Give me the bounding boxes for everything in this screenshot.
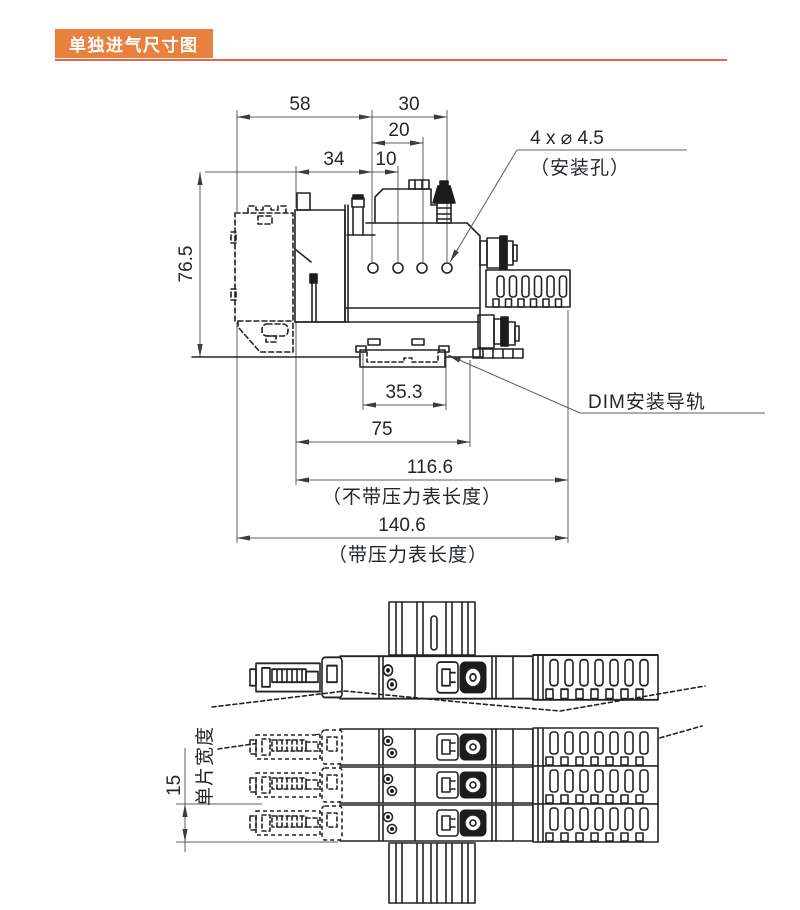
- dim-20: 20: [388, 120, 409, 141]
- dim-75: 75: [371, 419, 392, 440]
- top-view-drawing: 15 单片宽度: [164, 602, 705, 903]
- valve-plug-2: [250, 730, 342, 764]
- valve-plug-4: [250, 806, 342, 840]
- valve-plug-1: [250, 657, 342, 697]
- dim-34: 34: [323, 149, 345, 170]
- valve-slice-3: [340, 766, 658, 804]
- pilot-valve-body: [295, 193, 375, 322]
- side-view-drawing: 58 30 20 34 10 76.5 35.3 75 116.6 140.6 …: [176, 94, 765, 566]
- dim-116-6: 116.6: [407, 457, 453, 478]
- dim-140-6: 140.6: [378, 515, 426, 536]
- valve-plug-3: [250, 768, 342, 802]
- len-with-gauge-label: （带压力表长度）: [328, 544, 488, 566]
- fittings-silencer: [473, 236, 570, 358]
- len-without-gauge-label: （不带压力表长度）: [322, 486, 502, 508]
- pressure-gauge-phantom: [231, 206, 293, 352]
- din-rail-clip: [356, 339, 449, 367]
- mounting-hole-note: （安装孔）: [530, 157, 630, 179]
- dim-35-3: 35.3: [386, 382, 423, 403]
- section-title: 单独进气尺寸图: [69, 31, 199, 56]
- bottom-supply-block: [389, 843, 475, 903]
- section-header-rule: [55, 59, 727, 61]
- mounting-hole-callout: 4 x ⌀ 4.5: [530, 128, 604, 149]
- dim-76-5: 76.5: [176, 246, 197, 283]
- dim-30: 30: [398, 94, 419, 115]
- dim-15: 15: [164, 775, 185, 796]
- slice-width-label: 单片宽度: [194, 726, 216, 806]
- dim-10: 10: [375, 149, 396, 170]
- valve-slice-4: [340, 804, 658, 842]
- datasheet-page: 单独进气尺寸图: [0, 0, 800, 910]
- valve-slice-1: [340, 655, 658, 700]
- dimension-drawing-svg: 58 30 20 34 10 76.5 35.3 75 116.6 140.6 …: [0, 0, 800, 910]
- section-header-bar: 单独进气尺寸图: [55, 29, 213, 58]
- top-gauge-block: [389, 602, 475, 655]
- din-rail-label: DIM安装导轨: [588, 391, 706, 413]
- dim-58: 58: [289, 94, 310, 115]
- valve-slice-2: [340, 728, 658, 766]
